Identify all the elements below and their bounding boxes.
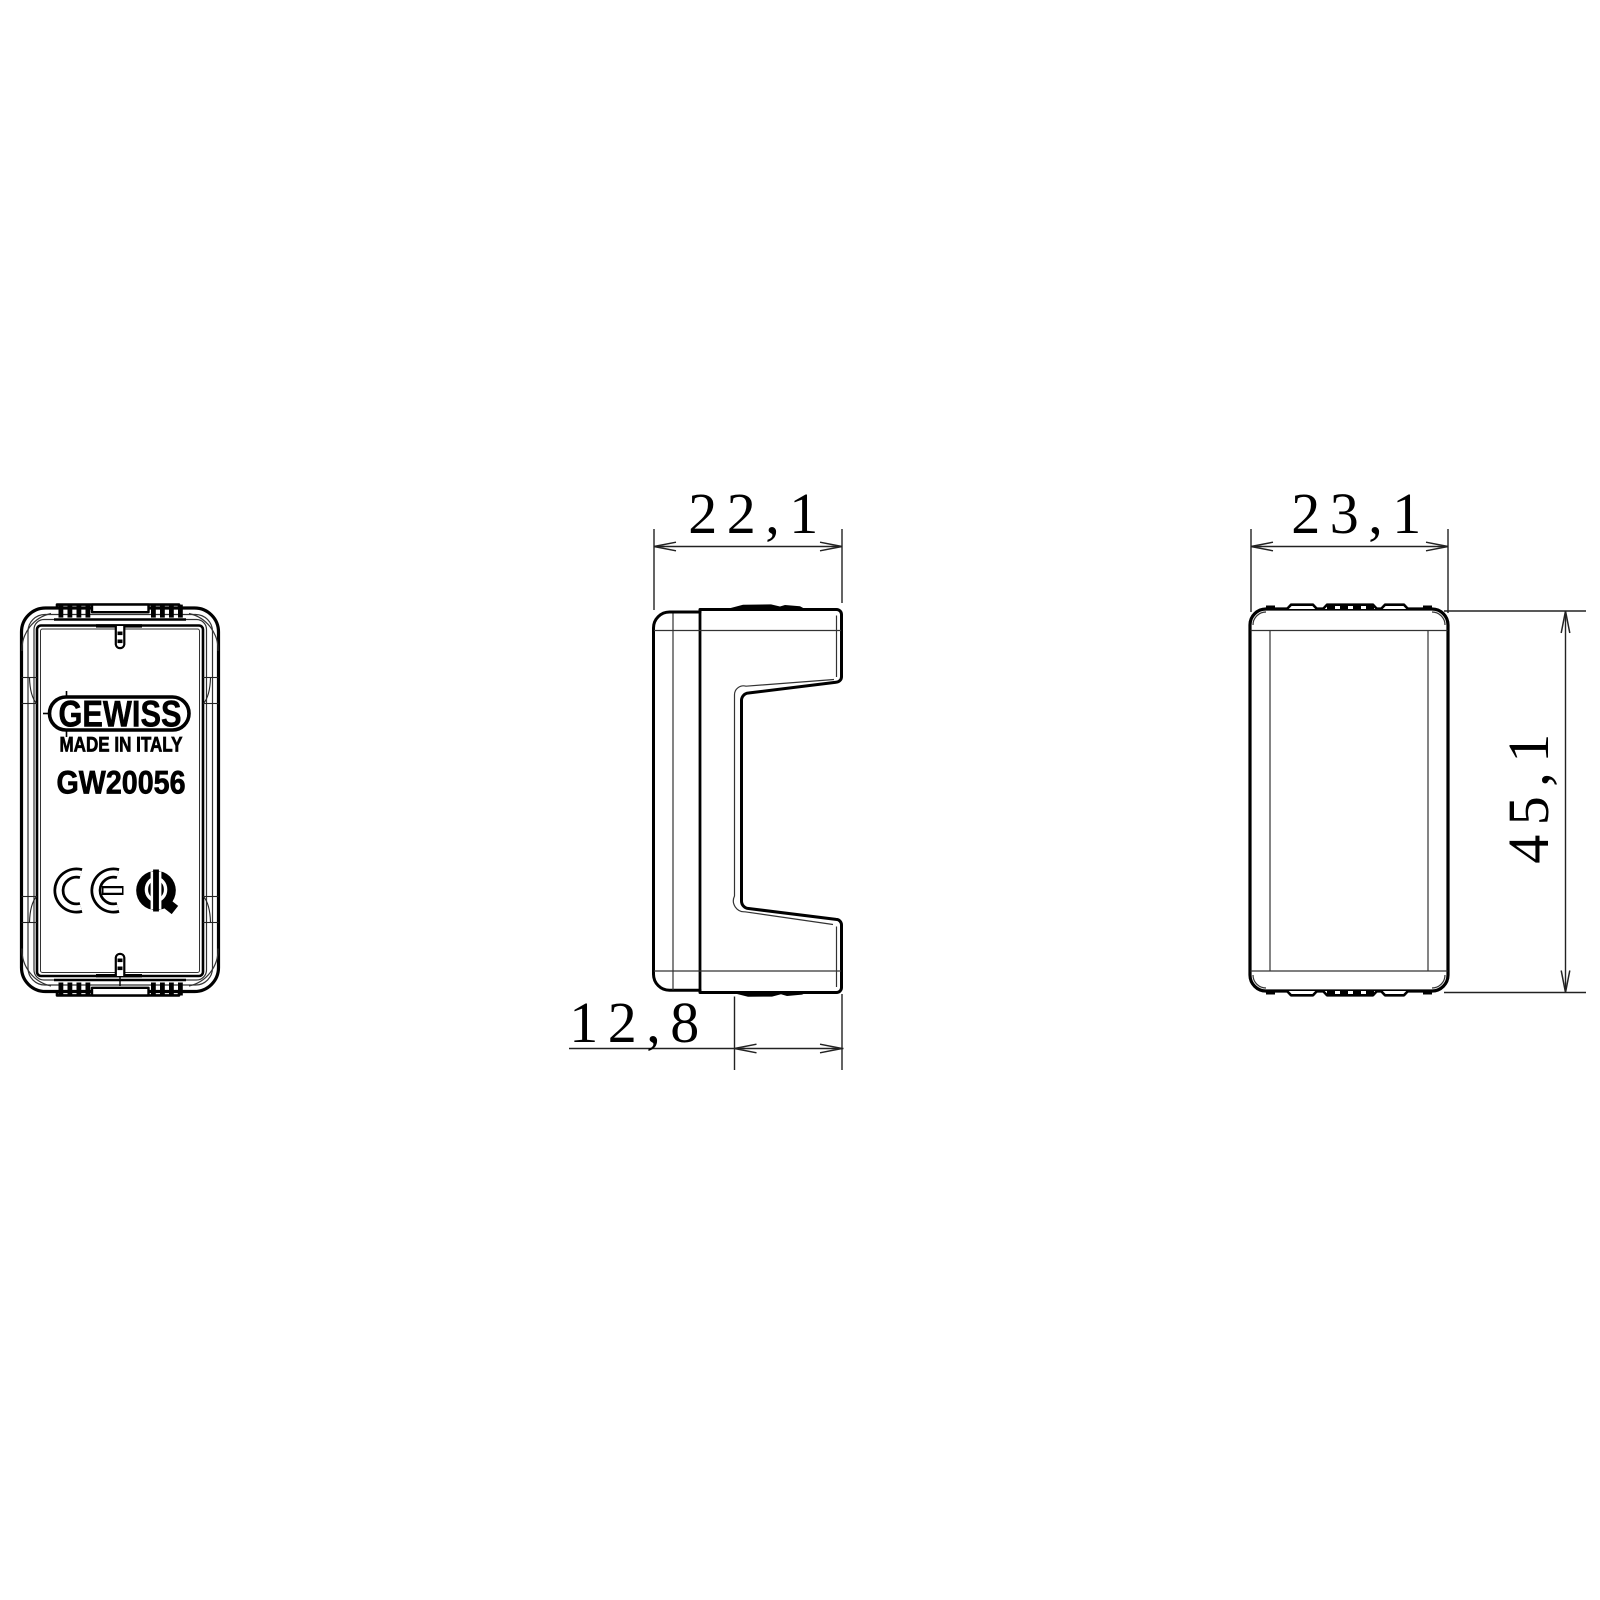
svg-text:GEWISS: GEWISS (59, 694, 182, 735)
svg-text:GW20056: GW20056 (57, 765, 186, 801)
svg-text:12,8: 12,8 (569, 990, 709, 1055)
svg-text:MADE IN ITALY: MADE IN ITALY (60, 734, 183, 757)
svg-text:23,1: 23,1 (1291, 481, 1431, 546)
svg-text:45,1: 45,1 (1496, 724, 1561, 864)
svg-text:22,1: 22,1 (688, 481, 828, 546)
